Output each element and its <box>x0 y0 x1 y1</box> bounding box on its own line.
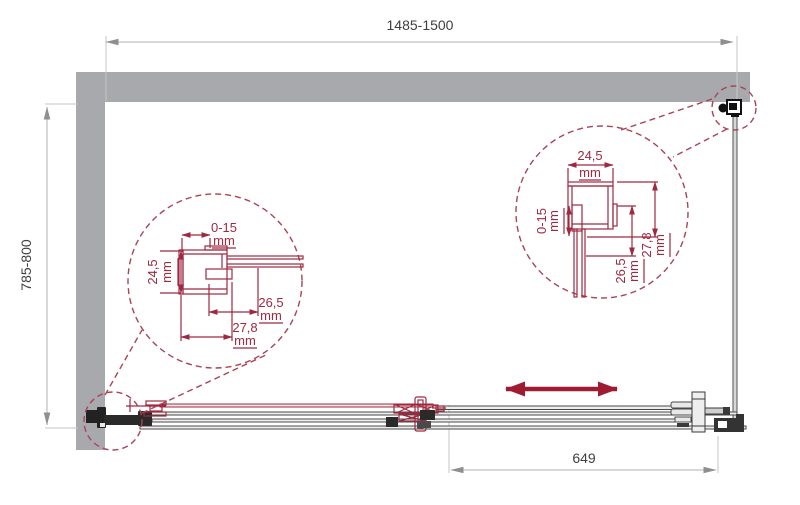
leader-line <box>673 129 727 157</box>
detail-left-left-value: 24,5 <box>145 259 160 284</box>
wall-profile-detail-right <box>568 182 617 297</box>
walls <box>76 72 750 450</box>
sliding-door-panel-red <box>160 404 433 407</box>
detail-right-top-value: 24,5 <box>577 148 602 163</box>
door-panel <box>436 406 673 410</box>
top-wall <box>76 72 750 102</box>
drawing-svg: 1485-1500 785-800 649 <box>0 0 800 505</box>
mm-unit-label: mm <box>546 210 561 232</box>
leader-line <box>621 99 712 130</box>
width-dimension-label: 1485-1500 <box>387 17 454 33</box>
track-rail <box>140 426 746 429</box>
mm-unit-label: mm <box>626 260 641 282</box>
leader-line <box>105 330 142 395</box>
mm-unit-label: mm <box>579 165 601 180</box>
mm-unit-label: mm <box>234 333 256 348</box>
fixed-side-panel <box>733 116 737 420</box>
left-wall <box>76 72 105 450</box>
sliding-door-track <box>86 100 746 432</box>
mm-unit-label: mm <box>159 261 174 283</box>
mm-unit-label: mm <box>213 233 235 248</box>
door-travel-label: 649 <box>572 450 596 466</box>
depth-dimension-label: 785-800 <box>18 239 34 291</box>
detail-bubble-right: 24,5 mm 0-15 mm 26,5 mm 27,8 mm <box>516 86 756 298</box>
wall-profile-detail-left <box>179 246 303 294</box>
depth-dimension: 785-800 <box>18 104 78 428</box>
shower-enclosure-technical-drawing: 1485-1500 785-800 649 <box>0 0 800 505</box>
top-right-bracket <box>719 100 742 117</box>
door-panel <box>148 412 737 415</box>
mm-unit-label: mm <box>260 308 282 323</box>
mm-unit-label: mm <box>652 234 667 256</box>
